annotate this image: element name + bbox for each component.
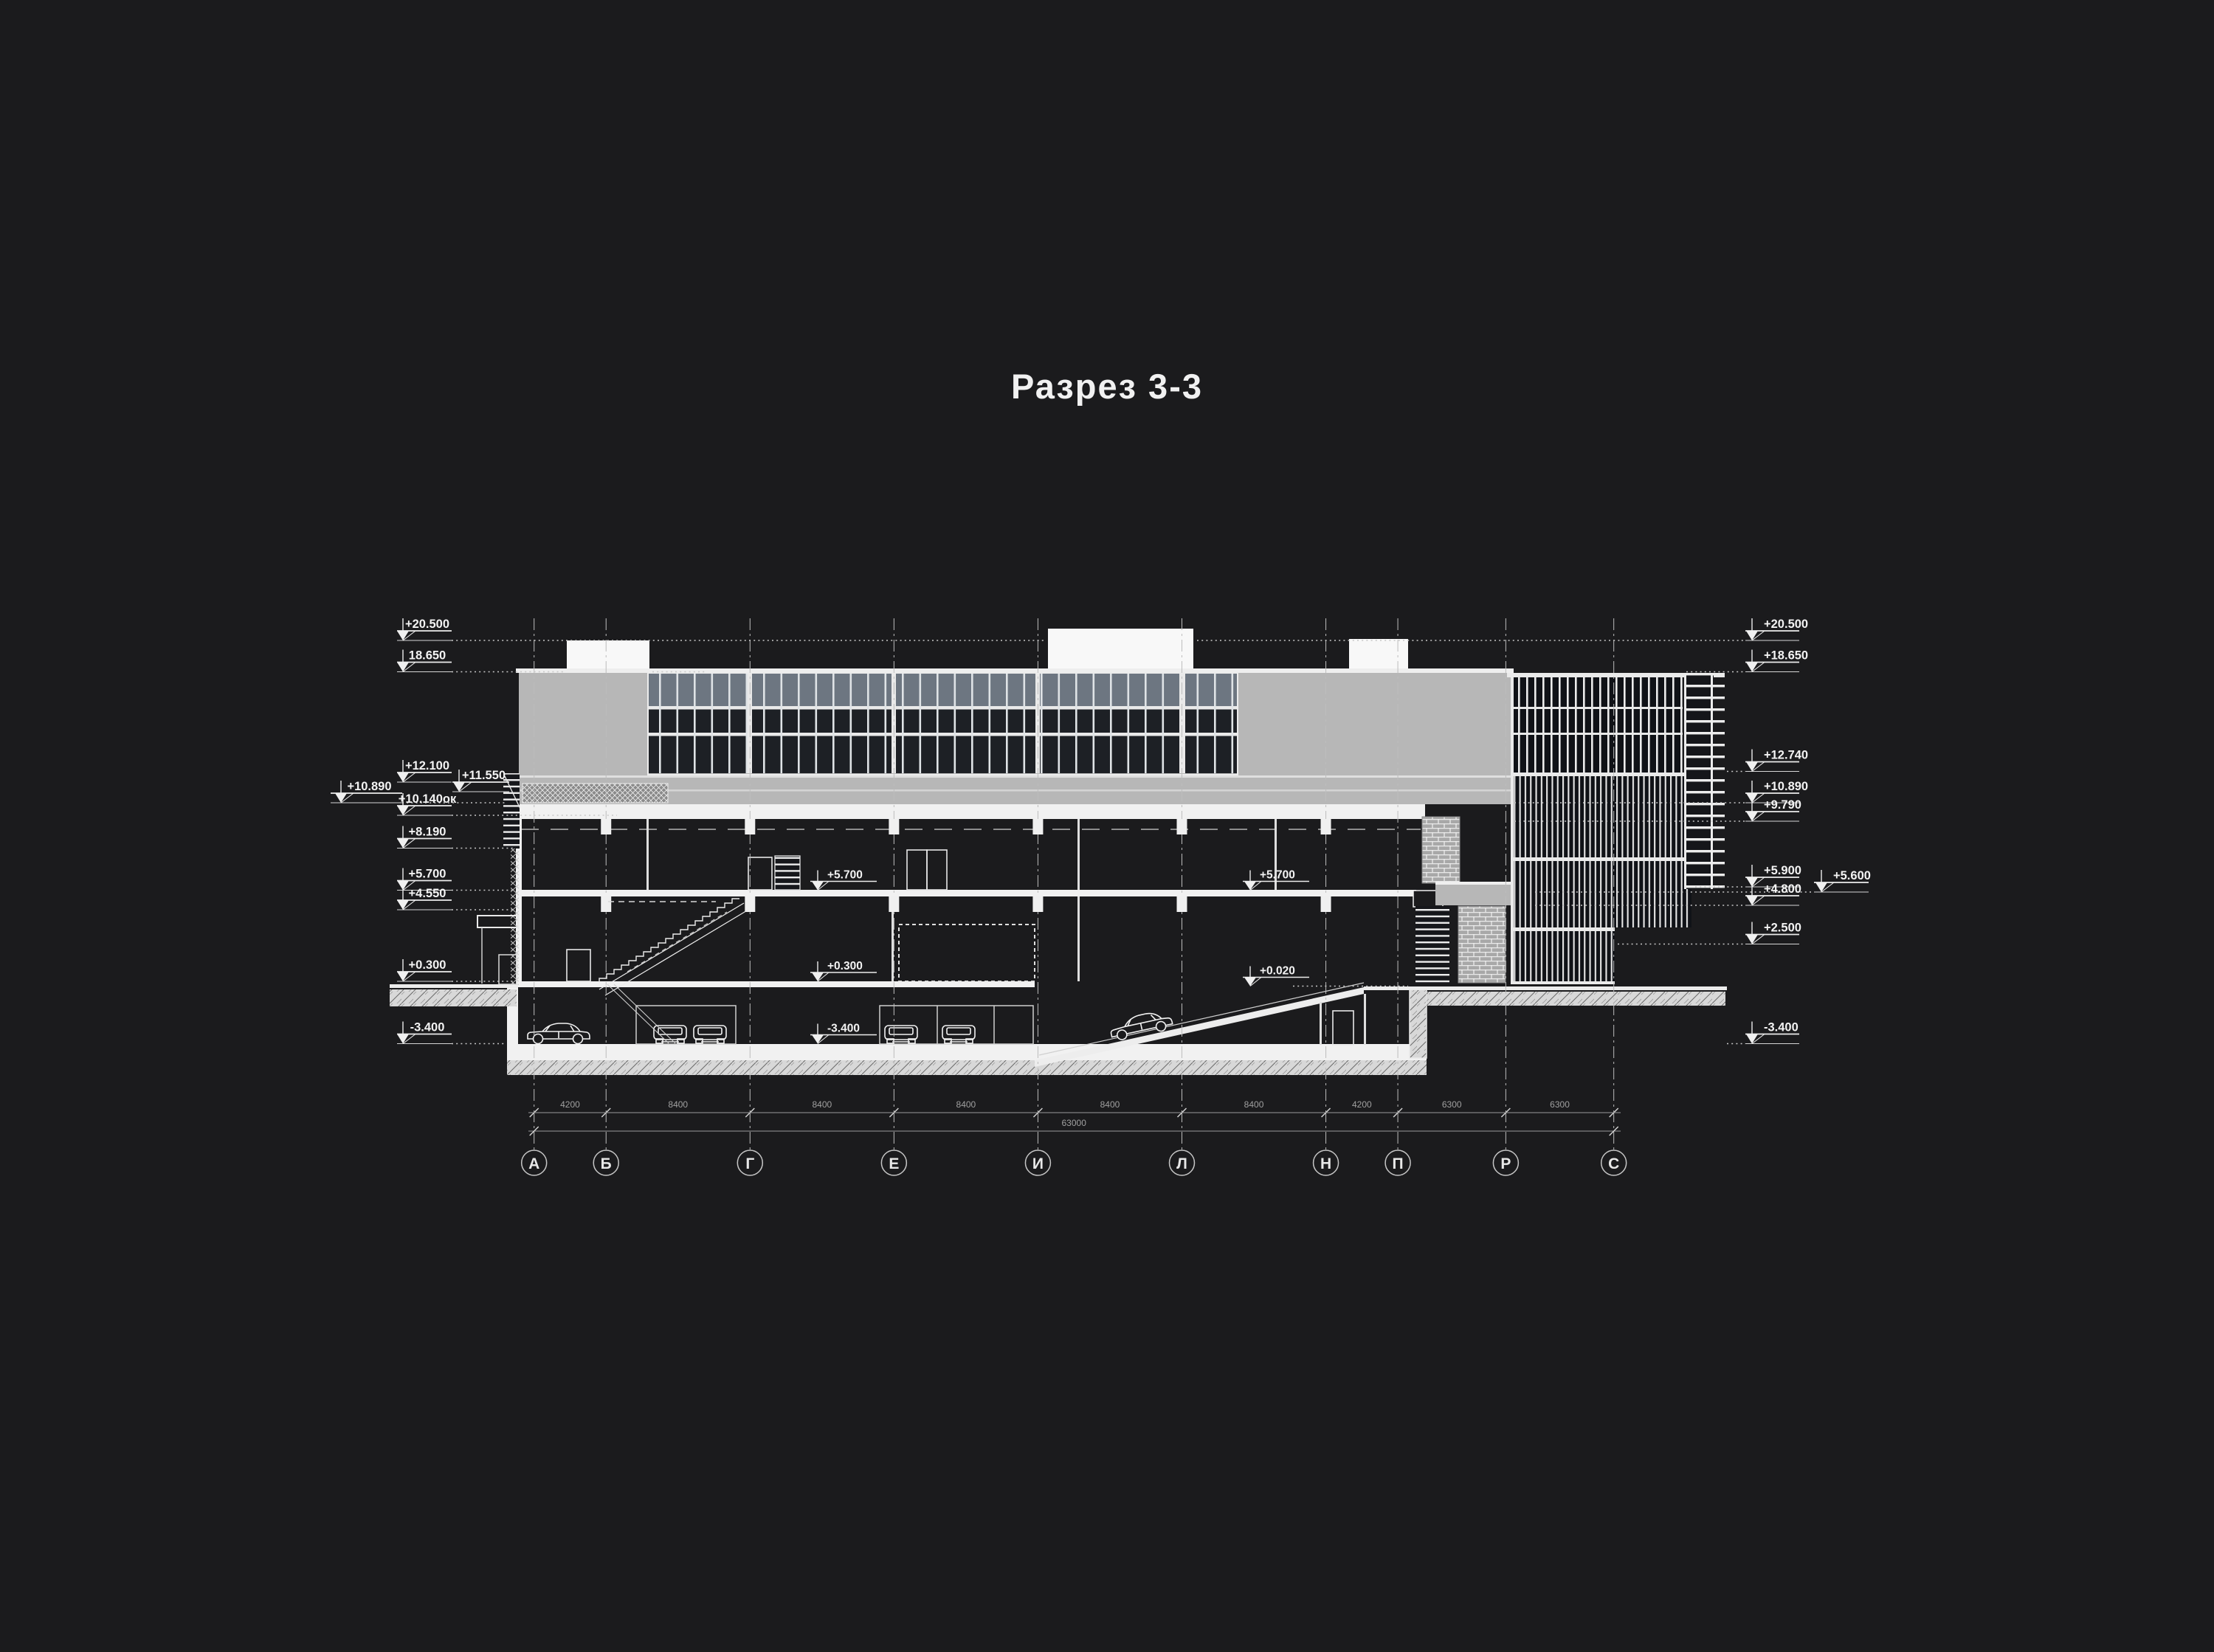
curtain-wall-glazing [648, 673, 1238, 775]
louver-edge-ladder-rungs [1686, 673, 1714, 889]
louver-sep-1 [1514, 773, 1695, 776]
axis-letter-Р: Р [1500, 1155, 1511, 1172]
axis-letter-Г: Г [745, 1155, 754, 1172]
right-basement-wall [1410, 989, 1427, 1058]
level-right--3.400-flag [1746, 1034, 1758, 1044]
ground-floor-slab [516, 981, 1035, 987]
shaft-2f-rungs [775, 856, 800, 890]
dim-span-label: 6300 [1550, 1099, 1570, 1110]
level-right-+5.600-label: +5.600 [1833, 869, 1871, 882]
column-stub-roof [1176, 819, 1187, 834]
axis-letter-С: С [1608, 1155, 1619, 1172]
level-right-+2.500-flag [1746, 935, 1758, 944]
basement-subgrade-hatch [507, 1060, 1427, 1075]
louver-sep-3 [1514, 927, 1615, 931]
dim-span-label: 8400 [668, 1099, 688, 1110]
level-left-+12.100-label: +12.100 [405, 759, 449, 773]
level-right-+12.740-label: +12.740 [1764, 749, 1808, 762]
level-left-18.650-flag [397, 663, 409, 672]
column-stub-2f [889, 896, 899, 912]
car-front-2 [694, 1026, 726, 1043]
louver-base [1514, 981, 1615, 984]
axis-letter-Б: Б [601, 1155, 612, 1172]
stair-lower-flight-1 [607, 984, 669, 1043]
level-left-+8.190-label: +8.190 [409, 826, 446, 839]
masonry-pier-lower [1458, 906, 1506, 983]
roof-box-right [1349, 639, 1408, 668]
perforated-panel-hatch [523, 784, 668, 803]
louver-left-rail [1511, 677, 1514, 984]
door-gf [567, 950, 590, 981]
dim-span-label: 4200 [560, 1099, 580, 1110]
level-left-+20.500-flag [397, 631, 409, 640]
level-left-+8.190-flag [397, 839, 409, 849]
level-left--3.400-flag [397, 1034, 409, 1044]
level-right--3.400-label: -3.400 [1764, 1021, 1799, 1034]
masonry-pier-upper [1422, 817, 1460, 883]
level-right-+9.790-flag [1746, 812, 1758, 821]
level-inner-+5.700-flag [812, 882, 824, 891]
roof-box-center [1048, 629, 1193, 668]
level-left-+0.300-flag [397, 972, 409, 981]
level-left-+4.550-label: +4.550 [409, 887, 446, 900]
louver-facade-block [1507, 673, 1725, 984]
column-stub-2f [601, 896, 611, 912]
level-right-+5.600-flag [1815, 882, 1827, 892]
level-right-+4.800-label: +4.800 [1764, 882, 1801, 896]
column-stub-2f [745, 896, 755, 912]
grade-hatch-left [390, 989, 517, 1006]
parking-box-2 [880, 1006, 1033, 1044]
level-inner-+0.020-label: +0.020 [1260, 965, 1295, 978]
level-left-+10.140ок-flag [397, 806, 409, 815]
louver-joint-2 [1511, 733, 1683, 735]
partition-gf-b [1077, 896, 1080, 981]
level-right-+18.650-label: +18.650 [1764, 649, 1808, 663]
level-left-+0.300-label: +0.300 [409, 958, 446, 972]
door-under-ramp [1333, 1011, 1353, 1045]
level-right-+4.800-flag [1746, 896, 1758, 905]
dim-span-label: 8400 [956, 1099, 976, 1110]
car-front-4 [942, 1026, 975, 1043]
level-left-+12.100-flag [397, 773, 409, 782]
car-front-1 [654, 1026, 686, 1043]
car-side-basement [528, 1023, 590, 1044]
stair-stringer-1 [599, 903, 744, 989]
under-ramp-wall-1 [1320, 1002, 1322, 1045]
second-floor-slab [516, 890, 1416, 896]
axis-letter-И: И [1032, 1155, 1044, 1172]
level-left-+20.500-label: +20.500 [405, 618, 449, 631]
level-left-+10.140ок-label: +10.140ок [399, 792, 457, 806]
louver-joint-1 [1511, 707, 1683, 709]
level-right-+20.500-flag [1746, 631, 1758, 640]
under-ramp-wall-2 [1364, 994, 1366, 1045]
stair-lower-flight-2 [614, 984, 675, 1043]
level-left-+11.550-flag [453, 782, 465, 792]
dim-span-label: 8400 [1244, 1099, 1264, 1110]
column-stub-roof [889, 819, 899, 834]
roof-box-left [567, 640, 649, 668]
dashed-gate-opening [899, 925, 1035, 981]
building-section [390, 629, 1727, 1075]
level-left-+4.550-flag [397, 900, 409, 910]
axis-letter-Н: Н [1320, 1155, 1331, 1172]
column-stub-2f [1032, 896, 1043, 912]
partition-2f-a [646, 819, 649, 890]
external-stair-treads [1415, 906, 1449, 983]
level-inner-+0.300-flag [812, 972, 824, 981]
column-stub-roof [1032, 819, 1043, 834]
level-left-+5.700-label: +5.700 [409, 868, 446, 881]
level-left-+10.890-label: +10.890 [347, 780, 391, 793]
level-left-+11.550-label: +11.550 [462, 769, 506, 782]
column-stub-roof [1321, 819, 1331, 834]
level-inner-+0.300-label: +0.300 [827, 960, 863, 972]
louver-band-2-fins [1514, 776, 1694, 857]
level-left--3.400-label: -3.400 [410, 1021, 445, 1034]
dim-span-label: 6300 [1442, 1099, 1462, 1110]
column-stub-2f [1176, 896, 1187, 912]
car-front-3 [885, 1026, 917, 1043]
double-door-2f-leaf2 [927, 850, 947, 890]
louver-edge-ticks [1712, 673, 1725, 889]
level-left-18.650-label: 18.650 [409, 649, 446, 663]
level-inner-+0.020-flag [1244, 978, 1256, 986]
level-right-+9.790-label: +9.790 [1764, 798, 1801, 812]
axis-letter-А: А [528, 1155, 539, 1172]
facade-joint-1 [519, 775, 1511, 778]
level-right-+18.650-flag [1746, 663, 1758, 672]
door-2f-single [748, 857, 772, 890]
dim-total-label: 63000 [1062, 1118, 1087, 1128]
wall-mullion-stack-rungs [503, 773, 520, 849]
ladder-rail-1 [1684, 673, 1686, 889]
column-stub-roof [601, 819, 611, 834]
ladder-rail-2 [1711, 673, 1713, 889]
basement-slab [507, 1044, 1427, 1060]
axis-letter-Е: Е [889, 1155, 899, 1172]
dim-span-label: 8400 [812, 1099, 832, 1110]
louver-band-4-fins [1514, 931, 1615, 981]
grade-line-right [1364, 986, 1727, 990]
axis-letter-Л: Л [1176, 1155, 1187, 1172]
level-inner--3.400-label: -3.400 [827, 1023, 860, 1035]
grade-hatch-right [1427, 992, 1725, 1006]
stair-railing-dashed [627, 912, 727, 972]
roof-slab [516, 804, 1425, 819]
column-stub-2f [1321, 896, 1331, 912]
section-drawing: АБГЕИЛНПРС420084008400840084008400420063… [0, 0, 2214, 1652]
partition-2f-b [1077, 819, 1080, 890]
blueprint-page: Разрез 3-3 [0, 0, 2214, 1652]
louver-band-3-fins [1514, 861, 1691, 927]
level-inner--3.400-flag [812, 1035, 824, 1044]
louver-band-1-fins [1511, 677, 1683, 773]
axis-letter-П: П [1393, 1155, 1404, 1172]
level-right-+2.500-label: +2.500 [1764, 922, 1801, 935]
glazing-grid-mullion-l [1179, 673, 1185, 773]
dim-span-label: 4200 [1352, 1099, 1372, 1110]
dim-span-label: 8400 [1100, 1099, 1120, 1110]
level-right-+12.740-flag [1746, 762, 1758, 772]
level-right-+5.900-label: +5.900 [1764, 864, 1801, 877]
column-stub-roof [745, 819, 755, 834]
stair-steps [599, 899, 739, 983]
glazing-mullions [648, 673, 1238, 773]
double-door-2f-leaf1 [907, 850, 927, 890]
level-inner-+5.700-label: +5.700 [827, 869, 863, 882]
level-inner-+5.700-label: +5.700 [1260, 869, 1295, 882]
level-left-+10.890-flag [335, 793, 347, 803]
louver-sep-2 [1514, 857, 1691, 861]
level-right-+20.500-label: +20.500 [1764, 618, 1808, 631]
level-right-+10.890-label: +10.890 [1764, 780, 1808, 793]
level-inner-+5.700-flag [1244, 882, 1256, 891]
